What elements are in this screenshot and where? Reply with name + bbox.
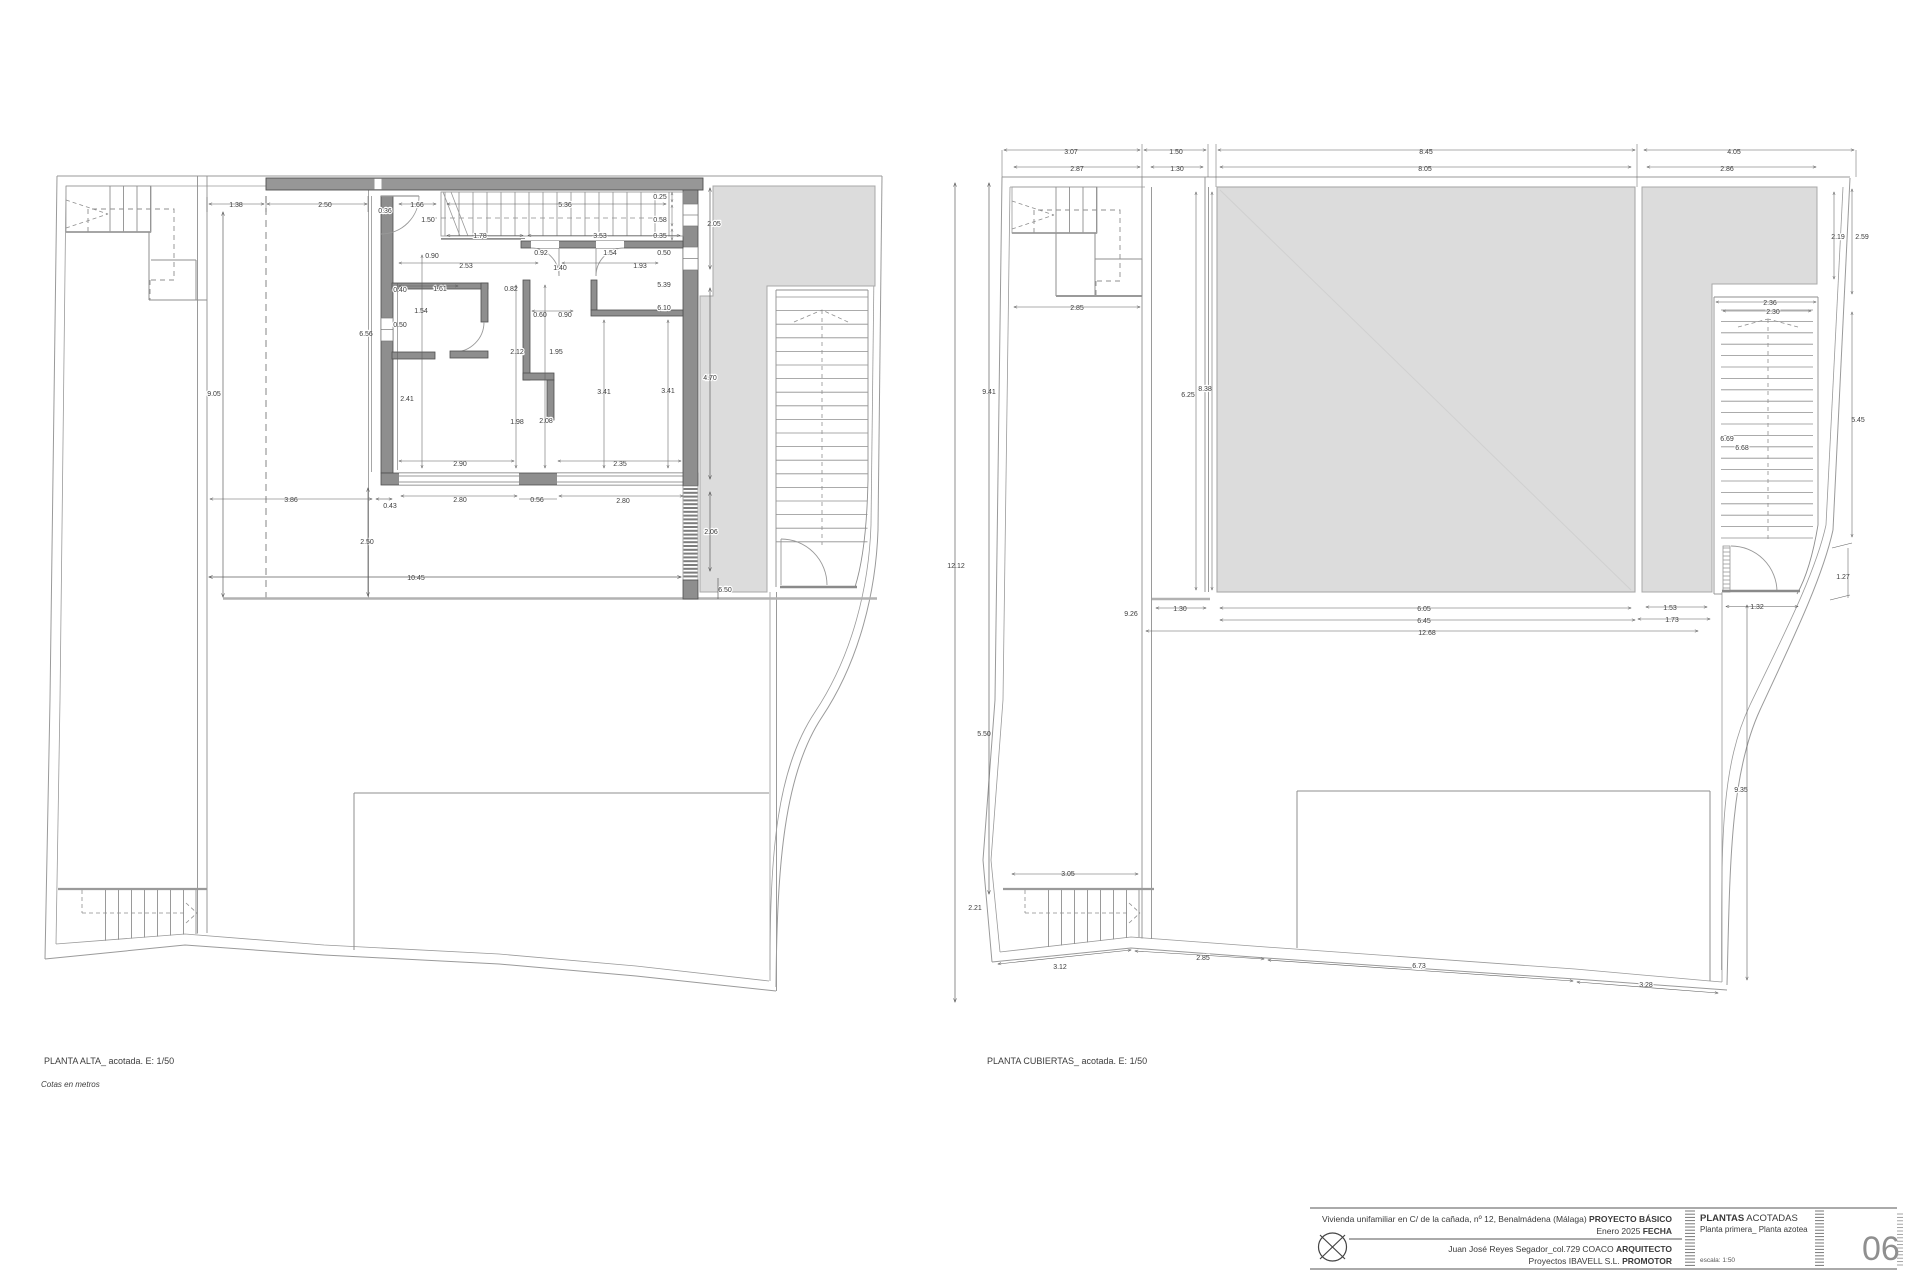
svg-text:2.50: 2.50 — [360, 539, 374, 546]
svg-text:PLANTAS ACOTADAS: PLANTAS ACOTADAS — [1700, 1213, 1798, 1224]
svg-text:10.45: 10.45 — [407, 575, 425, 582]
svg-text:2.59: 2.59 — [1855, 234, 1869, 241]
svg-text:escala: 1:50: escala: 1:50 — [1700, 1257, 1735, 1264]
svg-text:9.05: 9.05 — [207, 391, 221, 398]
svg-text:6.73: 6.73 — [1412, 963, 1426, 970]
svg-text:1.54: 1.54 — [603, 250, 617, 257]
svg-text:8.38: 8.38 — [1198, 386, 1212, 393]
svg-text:Juan José Reyes Segador_col.72: Juan José Reyes Segador_col.729 COACO AR… — [1448, 1244, 1672, 1254]
svg-text:2.19: 2.19 — [1831, 234, 1845, 241]
svg-text:Cotas en metros: Cotas en metros — [41, 1080, 100, 1089]
svg-text:0.90: 0.90 — [425, 253, 439, 260]
svg-text:6.68: 6.68 — [1735, 445, 1749, 452]
svg-text:1.40: 1.40 — [553, 265, 567, 272]
svg-text:1.50: 1.50 — [421, 217, 435, 224]
svg-text:2.06: 2.06 — [704, 529, 718, 536]
svg-text:0.35: 0.35 — [653, 233, 667, 240]
svg-text:2.21: 2.21 — [968, 905, 982, 912]
svg-text:5.39: 5.39 — [657, 282, 671, 289]
svg-text:6.56: 6.56 — [359, 331, 373, 338]
svg-text:0.43: 0.43 — [383, 503, 397, 510]
svg-text:2.50: 2.50 — [318, 202, 332, 209]
svg-text:6.50: 6.50 — [718, 587, 732, 594]
svg-text:1.73: 1.73 — [1665, 617, 1679, 624]
svg-text:1.95: 1.95 — [549, 349, 563, 356]
svg-text:1.61: 1.61 — [433, 286, 447, 293]
svg-text:PLANTA CUBIERTAS_ acotada. E:: PLANTA CUBIERTAS_ acotada. E: 1/50 — [987, 1056, 1147, 1066]
svg-text:2.35: 2.35 — [613, 461, 627, 468]
svg-text:5.45: 5.45 — [1851, 417, 1865, 424]
svg-text:2.05: 2.05 — [707, 221, 721, 228]
svg-text:1.53: 1.53 — [1663, 605, 1677, 612]
svg-text:0.50: 0.50 — [657, 250, 671, 257]
svg-text:1.93: 1.93 — [633, 263, 647, 270]
svg-text:0.92: 0.92 — [534, 250, 548, 257]
svg-text:5.36: 5.36 — [558, 202, 572, 209]
svg-text:12.12: 12.12 — [947, 563, 965, 570]
svg-text:0.40: 0.40 — [393, 287, 407, 294]
svg-text:1.38: 1.38 — [229, 202, 243, 209]
svg-text:2.53: 2.53 — [459, 263, 473, 270]
svg-text:2.36: 2.36 — [1763, 300, 1777, 307]
svg-text:6.45: 6.45 — [1417, 618, 1431, 625]
svg-text:2.80: 2.80 — [453, 497, 467, 504]
svg-text:Vivienda unifamiliar en C/ de: Vivienda unifamiliar en C/ de la cañada,… — [1322, 1214, 1672, 1224]
svg-text:2.08: 2.08 — [539, 418, 553, 425]
svg-text:2.80: 2.80 — [616, 498, 630, 505]
svg-text:Proyectos IBAVELL S.L. PROMOT: Proyectos IBAVELL S.L. PROMOTOR — [1529, 1256, 1672, 1266]
svg-text:1.66: 1.66 — [410, 202, 424, 209]
svg-text:06: 06 — [1862, 1230, 1900, 1268]
svg-text:Enero 2025 FECHA: Enero 2025 FECHA — [1596, 1226, 1672, 1236]
svg-text:0.56: 0.56 — [530, 497, 544, 504]
svg-text:2.85: 2.85 — [1070, 305, 1084, 312]
svg-text:1.78: 1.78 — [473, 233, 487, 240]
svg-text:1.54: 1.54 — [414, 308, 428, 315]
svg-text:2.85: 2.85 — [1196, 955, 1210, 962]
svg-text:2.12: 2.12 — [510, 349, 524, 356]
svg-text:3.12: 3.12 — [1053, 964, 1067, 971]
svg-text:0.90: 0.90 — [558, 312, 572, 319]
svg-text:6.25: 6.25 — [1181, 392, 1195, 399]
svg-text:1.32: 1.32 — [1750, 604, 1764, 611]
svg-text:1.30: 1.30 — [1173, 606, 1187, 613]
svg-text:0.36: 0.36 — [378, 208, 392, 215]
svg-text:2.41: 2.41 — [400, 396, 414, 403]
svg-text:0.25: 0.25 — [653, 194, 667, 201]
svg-text:1.98: 1.98 — [510, 419, 524, 426]
svg-text:3.05: 3.05 — [1061, 871, 1075, 878]
svg-text:2.30: 2.30 — [1766, 309, 1780, 316]
svg-text:3.86: 3.86 — [284, 497, 298, 504]
svg-text:0.50: 0.50 — [393, 322, 407, 329]
svg-text:6.69: 6.69 — [1720, 436, 1734, 443]
svg-text:2.90: 2.90 — [453, 461, 467, 468]
svg-text:9.35: 9.35 — [1734, 787, 1748, 794]
svg-text:Planta primera_ Planta azotea: Planta primera_ Planta azotea — [1700, 1225, 1808, 1234]
svg-text:6.10: 6.10 — [657, 305, 671, 312]
svg-text:9.26: 9.26 — [1124, 611, 1138, 618]
svg-text:PLANTA ALTA_ acotada. E: 1/50: PLANTA ALTA_ acotada. E: 1/50 — [44, 1056, 174, 1066]
svg-text:6.05: 6.05 — [1417, 606, 1431, 613]
svg-text:3.53: 3.53 — [593, 233, 607, 240]
svg-text:0.58: 0.58 — [653, 217, 667, 224]
